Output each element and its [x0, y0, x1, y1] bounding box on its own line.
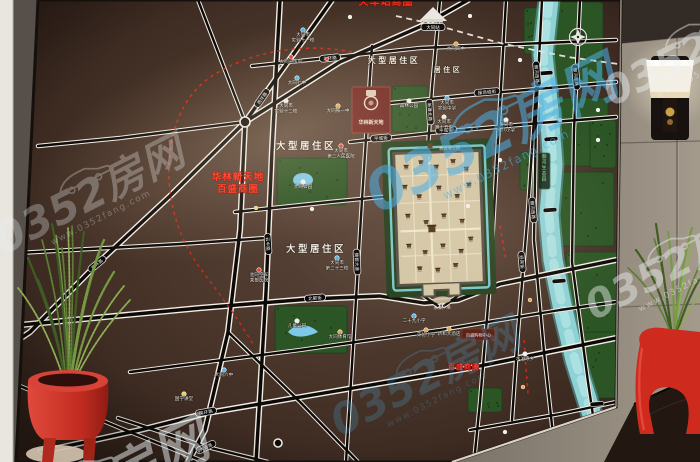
sconce-ornament: [666, 108, 675, 117]
photo-of-map-board: 古城墙公园 永泰广场 西环路西环路云中路北都街平城街平城街操场城街新建北路魏都大…: [0, 0, 700, 462]
vase-opening: [38, 374, 98, 387]
